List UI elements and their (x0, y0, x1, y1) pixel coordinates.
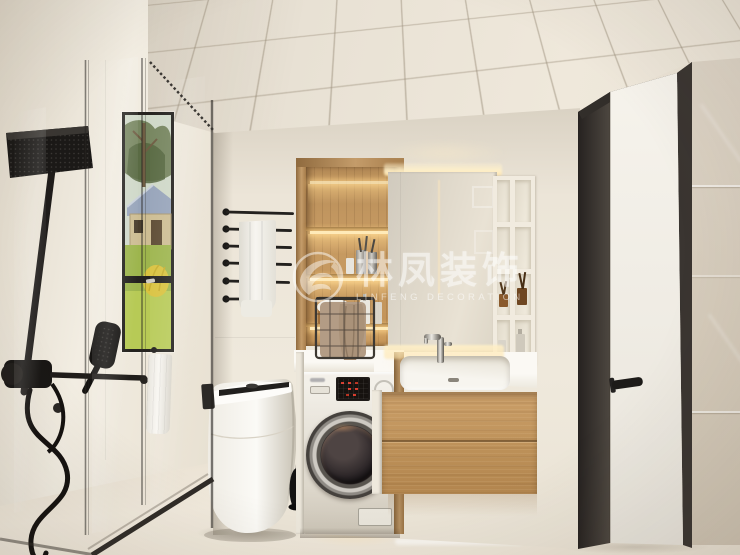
watermark-brand-cn: 林凤装饰 (356, 251, 524, 291)
watermark-text-block: 林凤装饰 LINFENG DECORATION (356, 251, 524, 303)
glass-front-bottom-frame (0, 539, 95, 555)
phoenix-logo-icon (290, 248, 348, 306)
watermark: 林凤装饰 LINFENG DECORATION (290, 244, 530, 310)
bathroom-interior-render: 林凤装饰 LINFENG DECORATION (0, 0, 740, 555)
glass-bottom-frame (92, 479, 213, 555)
glass-bottom-frame-reflection (88, 474, 208, 549)
glass-top-edge (150, 62, 214, 131)
watermark-brand-en: LINFENG DECORATION (356, 292, 524, 303)
